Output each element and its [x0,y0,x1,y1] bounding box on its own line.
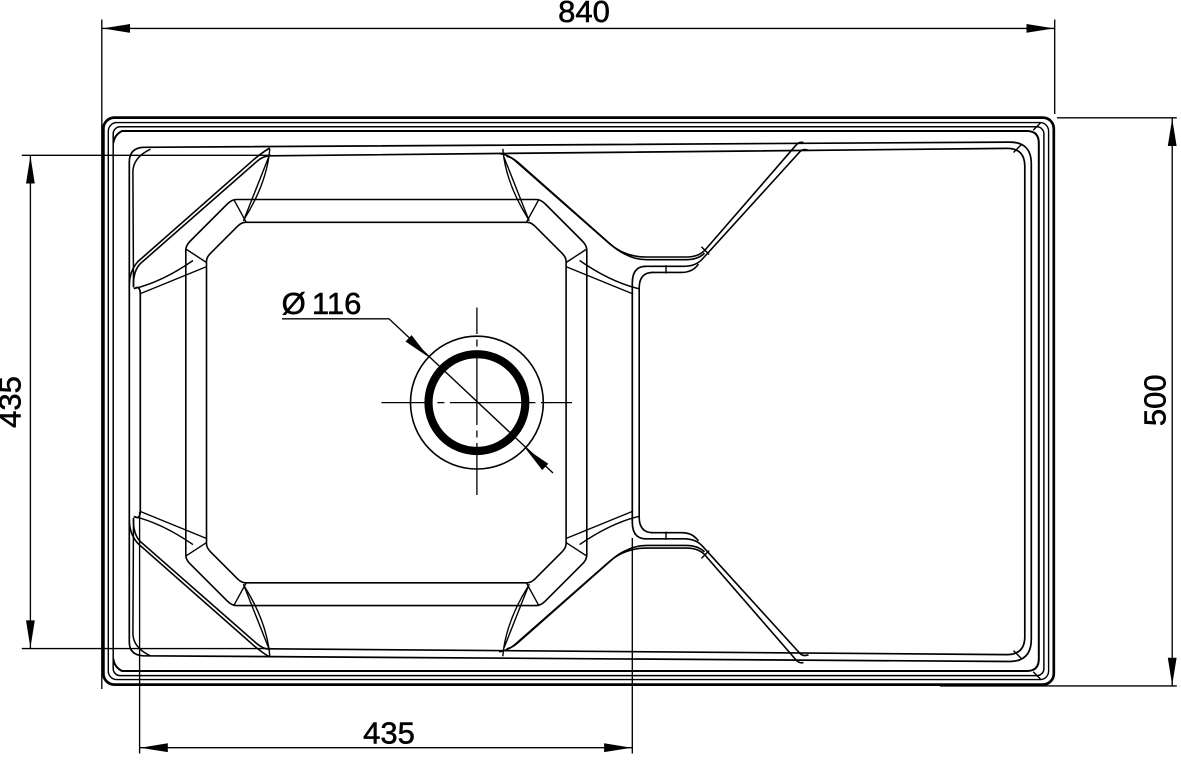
svg-text:435: 435 [363,715,415,750]
svg-text:500: 500 [1137,374,1172,426]
svg-text:840: 840 [558,0,610,29]
svg-text:435: 435 [0,376,27,428]
svg-text:Ø 116: Ø 116 [282,286,362,321]
